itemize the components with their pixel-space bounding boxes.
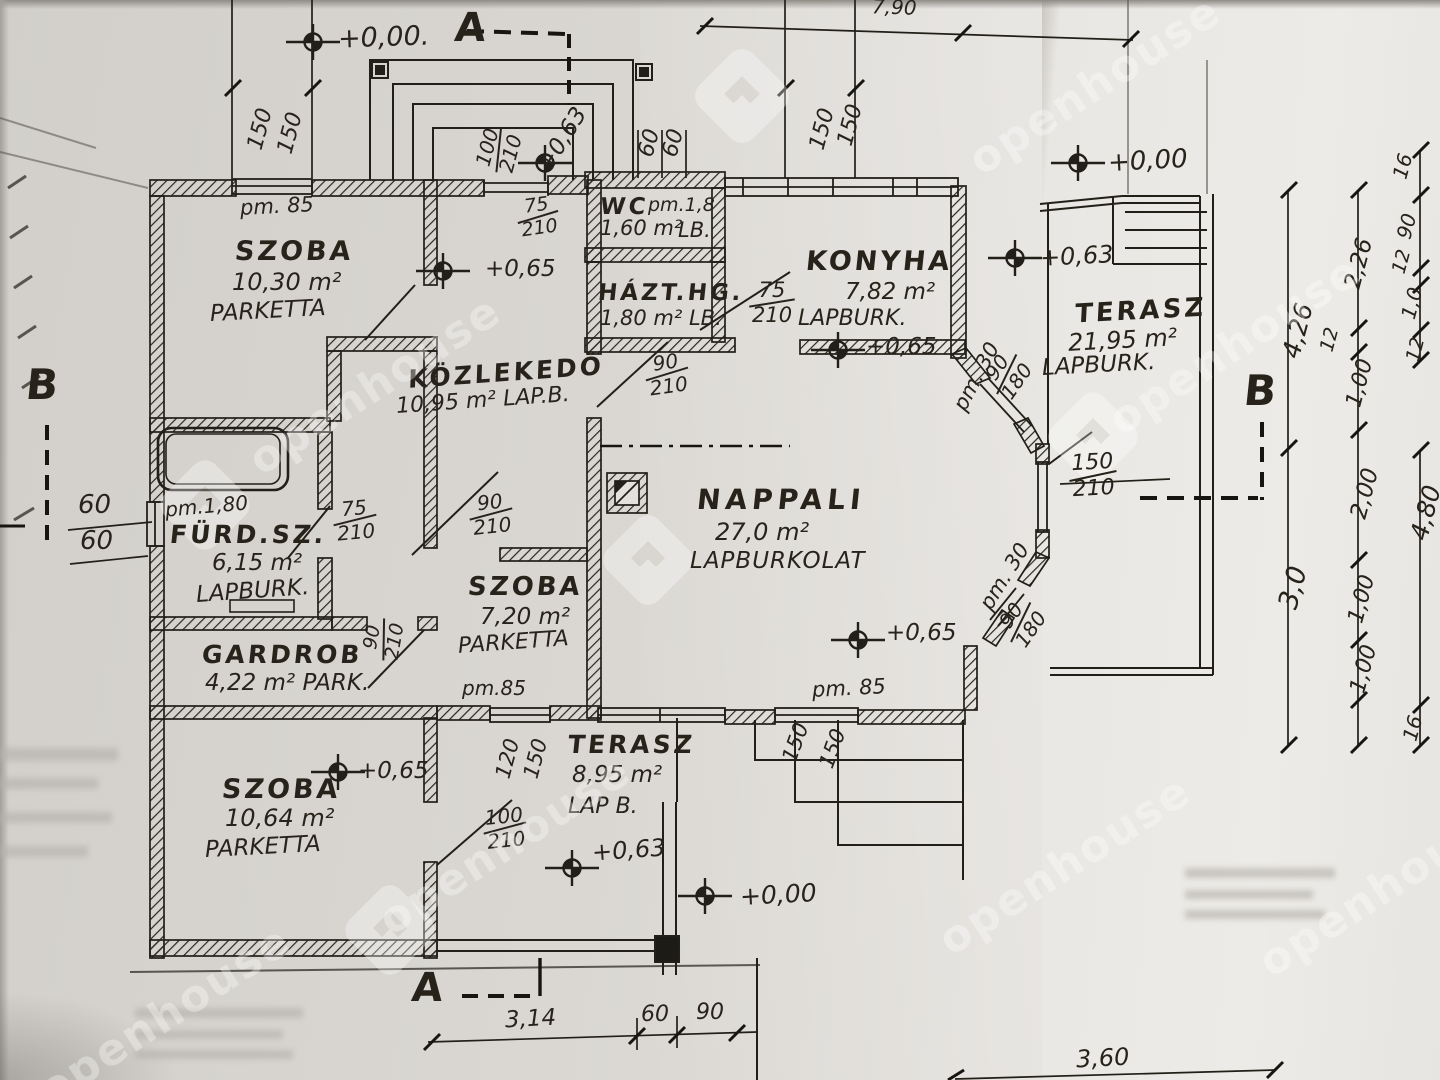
floor-plan-document: +0,00. A A B B 150 150 100 210 +0,63 60 … [0, 0, 1440, 1080]
dim-314: 3,14 [504, 1007, 556, 1033]
door-size-90-210: 90 210 [470, 490, 513, 539]
chimney [615, 481, 639, 505]
parapet-label-wc: pm.1,8 [648, 196, 715, 215]
section-b-label-right: B [1242, 370, 1282, 413]
door-size-90-210: 90 210 [645, 350, 689, 400]
room-area-szoba1: 10,30 m² [232, 270, 341, 294]
section-a-label-bottom: A [410, 968, 448, 1009]
room-label-szoba2: SZOBA [467, 574, 584, 601]
room-label-terasz1: TERASZ [1074, 295, 1206, 328]
dim-value: 75 [759, 280, 786, 301]
room-label-szoba3: SZOBA [221, 776, 342, 804]
dim-60: 60 [641, 1004, 669, 1026]
room-floor-nappali: LAPBURKOLAT [690, 550, 866, 573]
room-label-nappali: NAPPALI [695, 486, 867, 515]
level-label: +0,65 [886, 622, 956, 645]
parapet-label: pm.85 [462, 678, 526, 698]
adjacent-sheet-lines [0, 0, 1207, 194]
section-a-label: A [453, 8, 491, 49]
level-label: +0,65 [358, 760, 428, 783]
room-floor-konyha: LAPBURK. [798, 308, 906, 330]
dim-790: 7,90 [872, 0, 917, 18]
level-label: +0,65 [485, 258, 555, 281]
dim-90: 90 [1394, 211, 1420, 241]
page-edge-tick-marks [8, 176, 40, 520]
room-area-wc: 1,60 m² [600, 218, 682, 239]
room-area-gardrob: 4,22 m² PARK. [205, 672, 369, 695]
room-label-hazt: HÁZT.HG. [597, 282, 745, 305]
section-b-label-left: B [24, 364, 64, 407]
dim-value: 210 [336, 521, 376, 545]
level-label: +0,00 [739, 880, 817, 909]
door-size-75-210: 75 210 [517, 194, 559, 241]
dim-360: 3,60 [1075, 1045, 1130, 1072]
room-label-szoba1: SZOBA [234, 238, 355, 266]
door-size-90-210: 90 210 [360, 618, 408, 661]
level-label: +0,63 [1039, 242, 1114, 270]
parapet-label: pm. 85 [811, 676, 886, 701]
dim-value: 210 [752, 305, 792, 326]
level-label: +0,00. [338, 22, 430, 53]
dim-90: 90 [696, 1002, 724, 1024]
level-label: +0,63 [591, 835, 666, 865]
dim-60: 60 [80, 528, 113, 555]
parapet-label: pm. 85 [239, 194, 314, 219]
dim-16: 16 [1400, 713, 1426, 743]
dim-60: 60 [78, 492, 111, 519]
room-area-hazt: 1,80 m² LB. [600, 308, 722, 329]
level-label: +0,00 [1107, 146, 1188, 177]
door-size-150-210: 150 210 [1071, 451, 1116, 502]
room-area-nappali: 27,0 m² [715, 520, 809, 544]
room-label-konyha: KONYHA [805, 248, 954, 276]
door-size-75-210: 75 210 [334, 496, 376, 544]
room-label-terasz2: TERASZ [567, 732, 697, 758]
dim-value: 210 [1072, 477, 1115, 502]
room-area-furdo: 6,15 m² [212, 552, 302, 575]
level-label: +0,65 [866, 336, 936, 359]
door-size-75-210: 75 210 [752, 280, 792, 327]
dim-value: 90 [361, 624, 384, 651]
dim-16: 16 [1390, 151, 1416, 181]
room-area-konyha: 7,82 m² [845, 281, 935, 304]
room-label-furdo: FÜRD.SZ. [169, 522, 328, 548]
room-label-gardrob: GARDROB [201, 642, 364, 668]
room-area-szoba3: 10,64 m² [225, 806, 334, 830]
room-floor-wc: LB. [678, 220, 711, 241]
